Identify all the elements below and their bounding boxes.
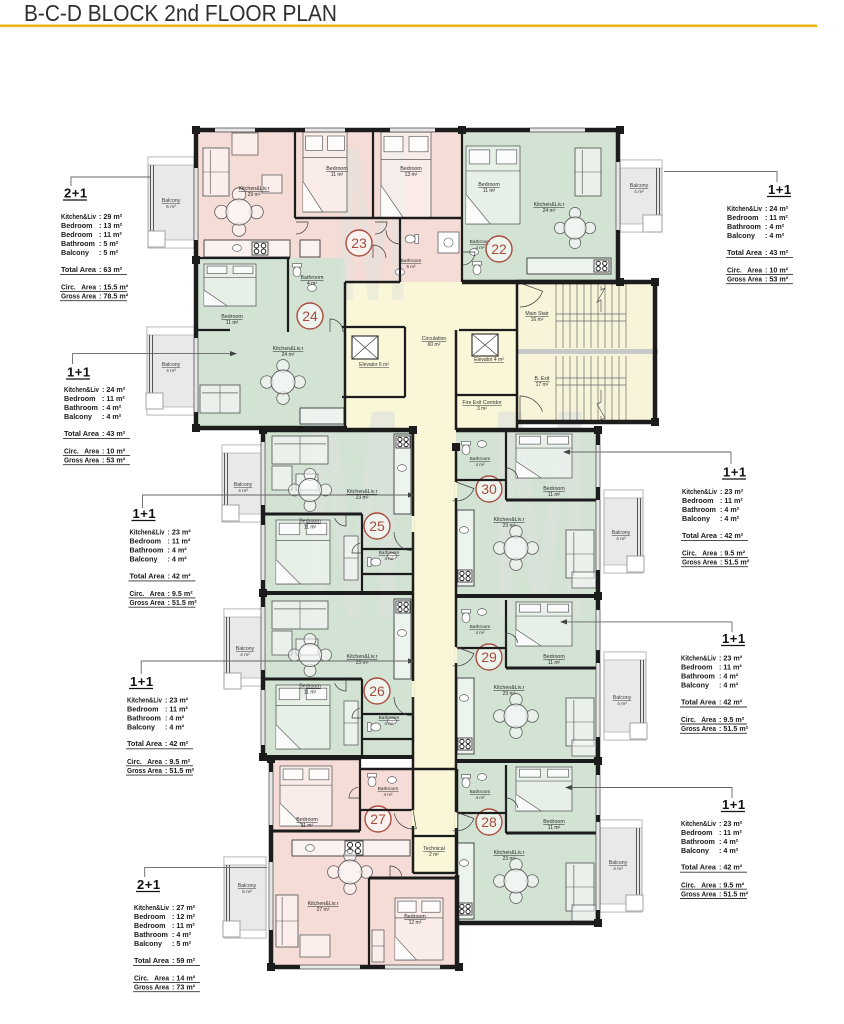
svg-text:60 m²: 60 m²	[428, 342, 441, 348]
svg-text:Bathroom: Bathroom	[64, 403, 98, 412]
svg-text:Balcony: Balcony	[613, 695, 632, 701]
svg-text:Balcony: Balcony	[61, 248, 89, 257]
svg-text:23 m²: 23 m²	[503, 691, 516, 697]
svg-text:11 m²: 11 m²	[331, 172, 344, 178]
svg-text:Gross Area: Gross Area	[64, 456, 100, 465]
svg-text:: 24 m²: : 24 m²	[765, 204, 789, 213]
svg-text:Balcony: Balcony	[727, 231, 755, 240]
svg-text:Total Area: Total Area	[727, 248, 763, 257]
svg-text:Kitchen&Liv: Kitchen&Liv	[682, 487, 717, 496]
svg-text:: 59 m²: : 59 m²	[172, 956, 196, 965]
svg-text:: 78.5 m²: : 78.5 m²	[99, 292, 129, 301]
svg-text:22: 22	[491, 241, 507, 257]
svg-text:5 m²: 5 m²	[407, 264, 417, 269]
svg-text:: 4 m²: : 4 m²	[102, 403, 122, 412]
svg-text:1+1: 1+1	[130, 674, 154, 689]
svg-text:Balcony: Balcony	[134, 939, 162, 948]
svg-text:24: 24	[302, 308, 318, 324]
svg-text:2 m²: 2 m²	[429, 852, 439, 858]
svg-text:Total Area: Total Area	[61, 265, 97, 274]
svg-text:: 73 m²: : 73 m²	[172, 983, 196, 992]
svg-text:4 m²: 4 m²	[617, 701, 627, 707]
svg-text:Kitchen&Liv: Kitchen&Liv	[130, 528, 165, 537]
svg-text:Bedroom: Bedroom	[130, 537, 162, 546]
svg-text:: 11 m²: : 11 m²	[165, 704, 188, 713]
svg-text:2+1: 2+1	[137, 877, 161, 892]
svg-text:Kitchen&Liv: Kitchen&Liv	[61, 212, 96, 221]
svg-text:4 m²: 4 m²	[476, 630, 486, 635]
svg-text:: 23 m²: : 23 m²	[719, 654, 743, 663]
svg-text:Gross Area: Gross Area	[681, 889, 717, 898]
svg-text:: 63 m²: : 63 m²	[99, 265, 123, 274]
svg-text:: 4 m²: : 4 m²	[765, 231, 785, 240]
svg-text:Balcony: Balcony	[681, 846, 709, 855]
svg-text:: 53 m²: : 53 m²	[765, 275, 789, 284]
svg-text:Circ. Area: Circ. Area	[727, 266, 763, 275]
svg-text:Bathroom: Bathroom	[130, 546, 164, 555]
svg-text:27 m²: 27 m²	[317, 907, 330, 913]
svg-text:12 m²: 12 m²	[409, 920, 422, 926]
svg-text:: 27 m²: : 27 m²	[172, 903, 196, 912]
svg-text:11 m²: 11 m²	[548, 492, 561, 498]
svg-text:Kitchen&Liv: Kitchen&Liv	[64, 385, 99, 394]
svg-text:4 m²: 4 m²	[385, 556, 395, 561]
svg-text:5 m²: 5 m²	[166, 204, 176, 210]
svg-text:Bathroom: Bathroom	[727, 222, 761, 231]
svg-text:Gross Area: Gross Area	[681, 724, 717, 733]
svg-text:: 11 m²: : 11 m²	[765, 213, 788, 222]
svg-text:Bedroom: Bedroom	[134, 912, 166, 921]
svg-text:Bathroom: Bathroom	[682, 505, 716, 514]
svg-text:: 4 m²: : 4 m²	[168, 546, 188, 555]
svg-text:: 11 m²: : 11 m²	[172, 921, 195, 930]
svg-text:: 51.5 m²: : 51.5 m²	[168, 598, 198, 607]
svg-text:Bedroom: Bedroom	[682, 496, 714, 505]
svg-text:Bedroom: Bedroom	[61, 221, 93, 230]
svg-text:: 4 m²: : 4 m²	[165, 722, 185, 731]
svg-text:: 23 m²: : 23 m²	[165, 695, 189, 704]
svg-text:Balcony: Balcony	[238, 883, 257, 889]
svg-text:: 5 m²: : 5 m²	[99, 248, 119, 257]
svg-text:: 51.5 m²: : 51.5 m²	[719, 889, 749, 898]
svg-text:1+1: 1+1	[768, 182, 792, 197]
svg-text:: 5 m²: : 5 m²	[172, 939, 192, 948]
svg-text:: 29 m²: : 29 m²	[99, 212, 123, 221]
svg-text:B-C-D BLOCK 2nd FLOOR PLAN: B-C-D BLOCK 2nd FLOOR PLAN	[24, 0, 337, 26]
svg-text:1+1: 1+1	[723, 465, 747, 480]
svg-text:: 13 m²: : 13 m²	[99, 221, 123, 230]
svg-text:Bathroom: Bathroom	[134, 930, 168, 939]
svg-text:24 m²: 24 m²	[282, 352, 295, 358]
svg-text:Balcony: Balcony	[236, 646, 255, 652]
svg-text:Balcony: Balcony	[682, 514, 710, 523]
svg-text:: 11 m²: : 11 m²	[720, 496, 743, 505]
svg-text:Total Area: Total Area	[134, 956, 170, 965]
svg-text:: 43 m²: : 43 m²	[102, 429, 126, 438]
svg-text:Balcony: Balcony	[162, 362, 181, 368]
svg-text:17 m²: 17 m²	[536, 382, 549, 388]
svg-text:Circ. Area: Circ. Area	[64, 447, 100, 456]
svg-text:Kitchen&Liv: Kitchen&Liv	[681, 819, 716, 828]
svg-text:: 11 m²: : 11 m²	[719, 828, 742, 837]
svg-text:Circ. Area: Circ. Area	[134, 974, 170, 983]
svg-text:4 m²: 4 m²	[384, 792, 394, 797]
svg-text:23: 23	[351, 235, 367, 251]
svg-text:28: 28	[481, 814, 497, 830]
svg-text:: 42 m²: : 42 m²	[168, 571, 192, 580]
svg-text:Total Area: Total Area	[64, 429, 100, 438]
svg-text:Bedroom: Bedroom	[681, 663, 713, 672]
svg-text:Circ. Area: Circ. Area	[127, 757, 163, 766]
svg-text:: 11 m²: : 11 m²	[168, 537, 191, 546]
svg-text:11 m²: 11 m²	[548, 660, 561, 666]
svg-text:: 12 m²: : 12 m²	[172, 912, 196, 921]
svg-text:: 4 m²: : 4 m²	[765, 222, 785, 231]
svg-text:Total Area: Total Area	[682, 531, 718, 540]
svg-text:Circ. Area: Circ. Area	[682, 549, 718, 558]
svg-text:Balcony: Balcony	[127, 722, 155, 731]
svg-text:Balcony: Balcony	[630, 183, 649, 189]
svg-text:: 4 m²: : 4 m²	[168, 555, 188, 564]
svg-text:: 11 m²: : 11 m²	[99, 230, 122, 239]
svg-text:Balcony: Balcony	[681, 681, 709, 690]
svg-text:5 m²: 5 m²	[242, 889, 252, 895]
svg-text:Gross Area: Gross Area	[130, 598, 166, 607]
svg-text:: 4 m²: : 4 m²	[719, 681, 739, 690]
svg-text:Bedroom: Bedroom	[681, 828, 713, 837]
svg-text:: 9.5 m²: : 9.5 m²	[720, 549, 746, 558]
svg-text:: 9.5 m²: : 9.5 m²	[719, 715, 745, 724]
svg-text:29 m²: 29 m²	[248, 192, 261, 198]
svg-text:Total Area: Total Area	[127, 739, 163, 748]
svg-text:30: 30	[481, 481, 497, 497]
svg-text:4 m²: 4 m²	[613, 866, 623, 872]
svg-text:4 m²: 4 m²	[634, 189, 644, 195]
svg-text:23 m²: 23 m²	[503, 856, 516, 862]
svg-text:Gross Area: Gross Area	[727, 275, 763, 284]
svg-text:: 4 m²: : 4 m²	[102, 412, 122, 421]
svg-text:Kitchen&Liv: Kitchen&Liv	[134, 903, 169, 912]
svg-text:Bedroom: Bedroom	[727, 213, 759, 222]
svg-text:4 m²: 4 m²	[476, 795, 486, 800]
svg-text:: 23 m²: : 23 m²	[168, 528, 192, 537]
svg-text:Balcony: Balcony	[130, 555, 158, 564]
svg-text:27: 27	[370, 811, 386, 827]
svg-text:4 m²: 4 m²	[476, 462, 486, 467]
svg-text:Circ. Area: Circ. Area	[61, 283, 97, 292]
svg-text:26: 26	[369, 683, 385, 699]
svg-text:Total Area: Total Area	[681, 863, 717, 872]
svg-text:: 23 m²: : 23 m²	[720, 487, 744, 496]
svg-text:23 m²: 23 m²	[356, 495, 369, 501]
svg-text:29: 29	[481, 649, 497, 665]
svg-text:Balcony: Balcony	[234, 482, 253, 488]
svg-text:Elevator 4 m²: Elevator 4 m²	[474, 357, 504, 363]
svg-text:: 5 m²: : 5 m²	[99, 239, 119, 248]
svg-text:Balcony: Balcony	[609, 860, 628, 866]
svg-text:11 m²: 11 m²	[301, 823, 314, 829]
svg-text:Elevator 6 m²: Elevator 6 m²	[359, 362, 389, 368]
svg-text:: 10 m²: : 10 m²	[102, 447, 126, 456]
svg-text:4 m²: 4 m²	[238, 488, 248, 494]
svg-text:: 4 m²: : 4 m²	[165, 713, 185, 722]
svg-text:Gross Area: Gross Area	[61, 292, 97, 301]
svg-text:24 m²: 24 m²	[543, 208, 556, 214]
svg-text:4 m²: 4 m²	[166, 368, 176, 374]
svg-text:11 m²: 11 m²	[483, 188, 496, 194]
svg-text:4 m²: 4 m²	[385, 721, 395, 726]
svg-text:Kitchen&Liv: Kitchen&Liv	[127, 695, 162, 704]
svg-text:Circ. Area: Circ. Area	[681, 715, 717, 724]
svg-text:2+1: 2+1	[64, 186, 88, 201]
svg-text:Gross Area: Gross Area	[127, 766, 163, 775]
svg-text:25: 25	[369, 518, 385, 534]
svg-text:: 15.5 m²: : 15.5 m²	[99, 283, 129, 292]
svg-text:4 m²: 4 m²	[616, 536, 626, 542]
svg-text:1+1: 1+1	[133, 506, 157, 521]
svg-text:Bedroom: Bedroom	[127, 704, 159, 713]
svg-text:Circ. Area: Circ. Area	[130, 589, 166, 598]
svg-text:: 42 m²: : 42 m²	[165, 739, 189, 748]
svg-text:: 4 m²: : 4 m²	[719, 672, 739, 681]
svg-text:Kitchen&Liv: Kitchen&Liv	[727, 204, 762, 213]
svg-text:: 10 m²: : 10 m²	[765, 266, 789, 275]
svg-text:: 4 m²: : 4 m²	[172, 930, 192, 939]
svg-text:Bathroom: Bathroom	[681, 837, 715, 846]
svg-text:1+1: 1+1	[722, 797, 746, 812]
svg-text:: 11 m²: : 11 m²	[719, 663, 742, 672]
svg-text:Balcony: Balcony	[64, 412, 92, 421]
svg-text:: 11 m²: : 11 m²	[102, 394, 125, 403]
svg-text:: 23 m²: : 23 m²	[719, 819, 743, 828]
svg-text:: 4 m²: : 4 m²	[720, 505, 740, 514]
svg-text:4 m²: 4 m²	[240, 652, 250, 658]
svg-text:Bathroom: Bathroom	[61, 239, 95, 248]
svg-text:4 m²: 4 m²	[307, 281, 317, 287]
svg-text:Gross Area: Gross Area	[134, 983, 170, 992]
svg-text:11 m²: 11 m²	[304, 525, 317, 531]
svg-text:Circ. Area: Circ. Area	[681, 880, 717, 889]
svg-text:Gross Area: Gross Area	[682, 558, 718, 567]
svg-text:: 4 m²: : 4 m²	[720, 514, 740, 523]
svg-text:: 51.5 m²: : 51.5 m²	[719, 724, 749, 733]
svg-text:: 4 m²: : 4 m²	[719, 837, 739, 846]
svg-text:: 9.5 m²: : 9.5 m²	[168, 589, 194, 598]
svg-text:11 m²: 11 m²	[548, 825, 561, 831]
svg-text:: 43 m²: : 43 m²	[765, 248, 789, 257]
svg-text:1+1: 1+1	[67, 365, 91, 380]
svg-text:: 24 m²: : 24 m²	[102, 385, 126, 394]
svg-text:Total Area: Total Area	[681, 697, 717, 706]
svg-text:Bedroom: Bedroom	[64, 394, 96, 403]
svg-text:3 m²: 3 m²	[477, 406, 487, 412]
svg-text:Balcony: Balcony	[612, 530, 631, 536]
svg-text:Kitchen&Liv: Kitchen&Liv	[681, 654, 716, 663]
svg-text:: 42 m²: : 42 m²	[720, 531, 744, 540]
svg-text:: 14 m²: : 14 m²	[172, 974, 196, 983]
svg-text:23 m²: 23 m²	[503, 523, 516, 529]
svg-text:13 m²: 13 m²	[405, 172, 418, 178]
svg-text:Balcony: Balcony	[162, 198, 181, 204]
svg-text:Bedroom: Bedroom	[61, 230, 93, 239]
svg-text:Bathroom: Bathroom	[127, 713, 161, 722]
svg-text:: 53 m²: : 53 m²	[102, 456, 126, 465]
svg-text:11 m²: 11 m²	[226, 320, 239, 326]
svg-text:1+1: 1+1	[722, 631, 746, 646]
svg-text:Bedroom: Bedroom	[134, 921, 166, 930]
svg-text:: 51.5 m²: : 51.5 m²	[720, 558, 750, 567]
svg-text:Total Area: Total Area	[130, 571, 166, 580]
svg-text:: 42 m²: : 42 m²	[719, 697, 743, 706]
svg-text:11 m²: 11 m²	[304, 690, 317, 696]
svg-text:: 9.5 m²: : 9.5 m²	[719, 880, 745, 889]
svg-text:Bathroom: Bathroom	[681, 672, 715, 681]
svg-text:16 m²: 16 m²	[531, 317, 544, 323]
svg-text:: 4 m²: : 4 m²	[719, 846, 739, 855]
svg-text:: 9.5 m²: : 9.5 m²	[165, 757, 191, 766]
svg-text:: 42 m²: : 42 m²	[719, 863, 743, 872]
svg-text:4 m²: 4 m²	[476, 245, 486, 250]
svg-text:: 51.5 m²: : 51.5 m²	[165, 766, 195, 775]
